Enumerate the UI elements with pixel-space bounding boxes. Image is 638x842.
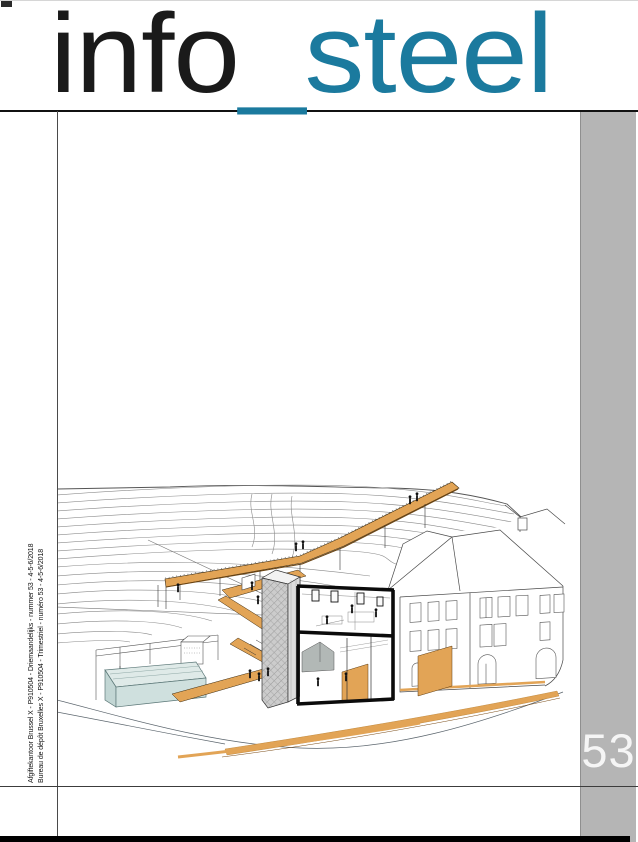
bottom-rule — [0, 786, 638, 787]
cover-illustration — [0, 0, 638, 842]
spine-line-french: Bureau de dépôt Bruxelles X - P910504 - … — [37, 531, 47, 783]
left-vertical-rule — [57, 111, 58, 836]
masthead-title: info_steel — [50, 0, 552, 114]
water-basin — [105, 662, 206, 707]
existing-buildings-elevation — [388, 505, 565, 694]
masonry-tower — [262, 570, 300, 708]
issue-number: 53 — [581, 727, 636, 774]
small-white-hut — [181, 636, 210, 664]
masthead-word-steel: _steel — [239, 0, 552, 116]
spine-postal-text: Afgiftekantoor Brussel X - P910504 - Dri… — [27, 531, 46, 783]
masthead-word-info: info — [50, 0, 239, 116]
bottom-black-bar — [0, 836, 630, 842]
spine-line-dutch: Afgiftekantoor Brussel X - P910504 - Dri… — [27, 531, 37, 783]
magazine-cover-page: info_steel 53 Afgiftekantoor Brussel X -… — [0, 0, 638, 842]
section-cut-box — [297, 586, 394, 704]
